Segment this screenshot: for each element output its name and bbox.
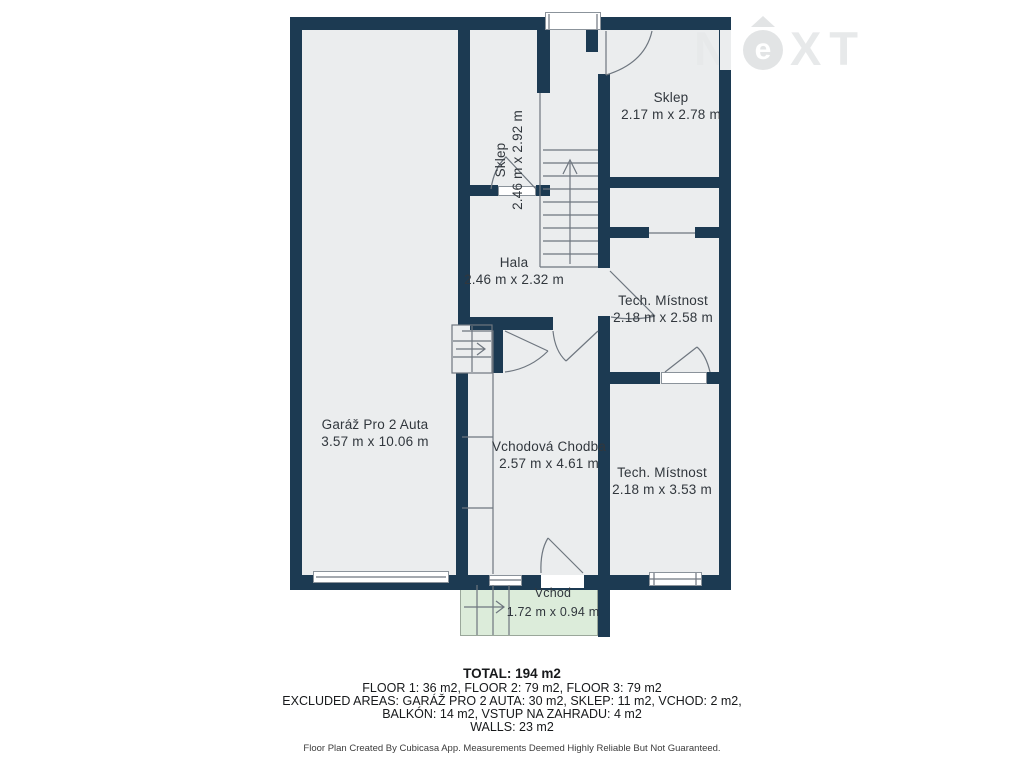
room-name: Vchodová Chodba [492,438,606,455]
room-name: Garáž Pro 2 Auta [321,416,429,433]
room-name: Hala [464,254,564,271]
room-name: Vchod [507,584,600,603]
label-tech2: Tech. Místnost 2.18 m x 3.53 m [612,464,712,498]
room-dims: 2.46 m x 2.92 m [509,110,526,210]
room-name: Sklep [492,110,509,210]
wall-outer-top [290,17,731,30]
room-name: Tech. Místnost [613,292,713,309]
window-bottom [649,572,702,586]
summary-walls: WALLS: 23 m2 [0,721,1024,734]
wall-entry-right [598,577,610,637]
wall-hala-bottom [470,317,553,330]
watermark-e-badge: e [743,22,783,74]
garage-door [313,571,449,583]
room-dims: 2.57 m x 4.61 m [492,455,606,472]
label-sklep2: Sklep 2.17 m x 2.78 m [621,89,721,123]
wall-tech1-bottom-right [707,372,719,384]
summary-floors: FLOOR 1: 36 m2, FLOOR 2: 79 m2, FLOOR 3:… [0,682,1024,695]
wall-tech1-bottom-left [610,372,660,384]
wall-stairwell-left-stub [537,30,550,93]
wall-sklep1-bottom-right [536,185,550,196]
watermark-letters-xt: XT [790,25,866,72]
wall-sklep2-bottom [610,177,719,188]
wall-tech1-top-left-stub [610,227,649,238]
room-dims: 1.72 m x 0.94 m [507,603,600,622]
label-tech1: Tech. Místnost 2.18 m x 2.58 m [613,292,713,326]
summary-disclaimer: Floor Plan Created By Cubicasa App. Meas… [0,743,1024,754]
label-garage: Garáž Pro 2 Auta 3.57 m x 10.06 m [321,416,429,450]
threshold-tech-door [661,372,707,384]
watermark-letter-e: e [743,30,783,70]
window-top [545,12,601,30]
room-dims: 2.46 m x 2.32 m [464,271,564,288]
wall-stairwell-right-stub [586,30,598,52]
room-dims: 3.57 m x 10.06 m [321,433,429,450]
label-chodba: Vchodová Chodba 2.57 m x 4.61 m [492,438,606,472]
wall-garage-right-lower [456,373,468,577]
room-dims: 2.17 m x 2.78 m [621,106,721,123]
summary-block: TOTAL: 194 m2 FLOOR 1: 36 m2, FLOOR 2: 7… [0,667,1024,754]
label-hala: Hala 2.46 m x 2.32 m [464,254,564,288]
summary-total: TOTAL: 194 m2 [0,667,1024,681]
floor-plan-page: N e XT [0,0,1024,768]
room-name: Tech. Místnost [612,464,712,481]
wall-stair-pillar [492,325,503,373]
wall-recess [720,30,731,70]
room-name: Sklep [621,89,721,106]
wall-right-column-upper [598,74,610,268]
label-vchod: Vchod 1.72 m x 0.94 m [507,584,600,622]
wall-outer-left [290,17,302,590]
caret-icon [751,16,775,27]
room-dims: 2.18 m x 3.53 m [612,481,712,498]
room-dims: 2.18 m x 2.58 m [613,309,713,326]
wall-tech1-top-right-stub [695,227,719,238]
summary-excluded-1: EXCLUDED AREAS: GARÁŽ PRO 2 AUTA: 30 m2,… [0,695,1024,708]
label-sklep1: Sklep 2.46 m x 2.92 m [492,110,526,210]
